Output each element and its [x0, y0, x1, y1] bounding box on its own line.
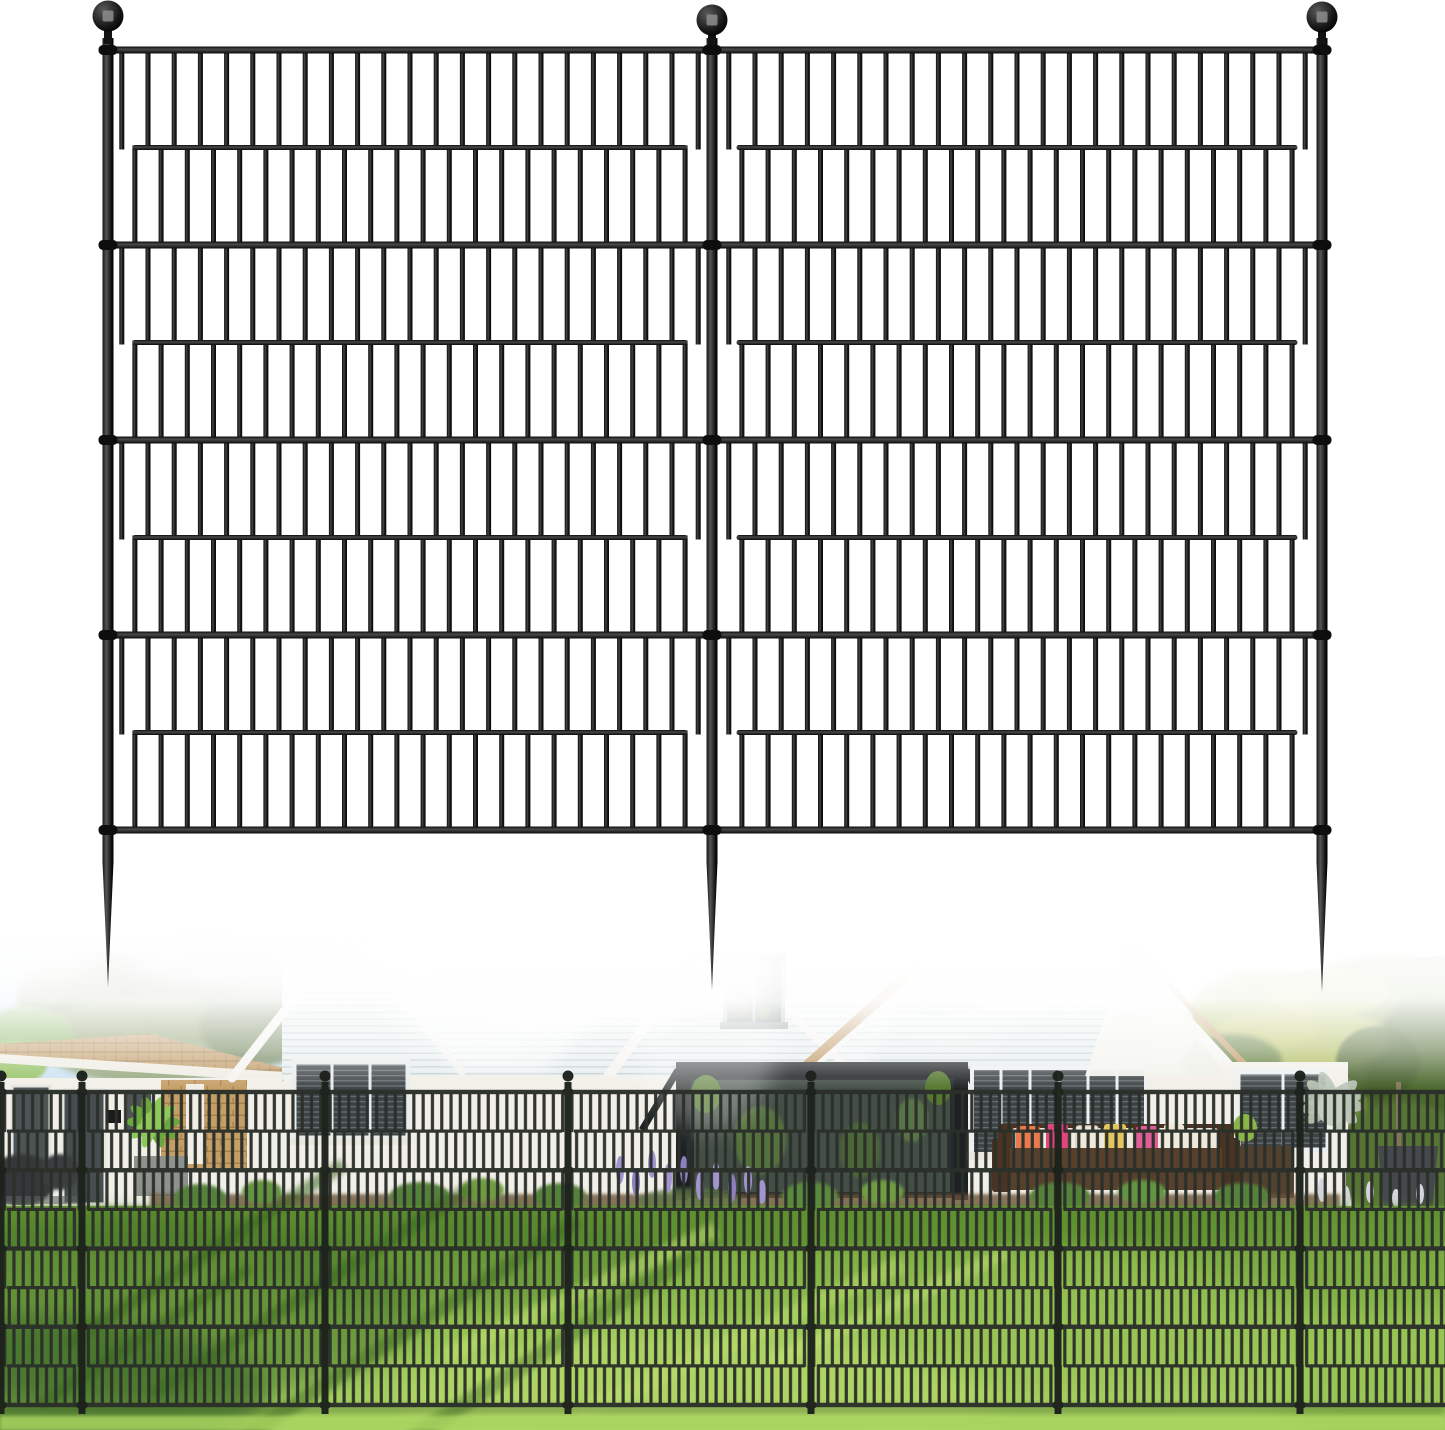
fence-bar — [1132, 146, 1137, 248]
fence-bar — [831, 48, 836, 150]
fence-bar — [1185, 146, 1190, 248]
fence-bar — [1172, 243, 1177, 345]
fence-bar — [1119, 633, 1124, 735]
fence-bar — [394, 146, 399, 248]
fence-bar — [949, 146, 954, 248]
post-shaft — [103, 38, 114, 862]
fence-bar — [1093, 243, 1098, 345]
post-collar — [703, 435, 722, 445]
scene-svg — [0, 0, 1445, 1430]
fence-bar — [355, 48, 360, 150]
post-collar — [0, 1245, 7, 1252]
fence-bar — [539, 243, 544, 345]
post-collar — [77, 1167, 88, 1174]
post-collar — [1295, 1245, 1306, 1252]
post-collar — [77, 1402, 88, 1409]
post-collar — [0, 1323, 7, 1330]
fence-bar — [779, 438, 784, 540]
inset-rail — [331, 1364, 562, 1367]
post-collar — [1295, 1167, 1306, 1174]
fence-bar — [949, 731, 954, 833]
inset-rail — [7, 1364, 76, 1367]
inset-rail — [737, 145, 1298, 150]
fence-bar — [630, 341, 635, 443]
fence-bar — [936, 243, 941, 345]
fence-bar — [303, 48, 308, 150]
post-collar — [0, 1167, 7, 1174]
fence-bar — [1080, 341, 1085, 443]
bar-band — [0, 1365, 1445, 1406]
fence-bar — [368, 341, 373, 443]
fence-bar — [1211, 146, 1216, 248]
fence-bar — [250, 243, 255, 345]
fence-bar — [1001, 146, 1006, 248]
fence-bar — [1224, 48, 1229, 150]
finial-glint — [103, 11, 114, 22]
fence-bar — [766, 146, 771, 248]
fence-bar — [237, 146, 242, 248]
fence-bar — [792, 146, 797, 248]
fence-bar — [224, 48, 229, 150]
fence-bar — [617, 243, 622, 345]
fence-bar — [753, 633, 758, 735]
fence-bar — [936, 438, 941, 540]
fence-bar — [1106, 731, 1111, 833]
fence-bar — [329, 633, 334, 735]
post-collar — [1313, 825, 1332, 835]
post-collar — [320, 1323, 331, 1330]
inset-rail — [817, 1286, 1052, 1289]
fence-bar — [1015, 243, 1020, 345]
fence-bar — [884, 633, 889, 735]
inset-rail — [817, 1130, 1052, 1133]
fence-bar — [1185, 731, 1190, 833]
inset-rail — [1064, 1208, 1294, 1211]
fence-bar — [329, 243, 334, 345]
fence-bar — [525, 536, 530, 638]
fence-bar — [159, 731, 164, 833]
ball-cap — [320, 1071, 331, 1082]
post-collar — [563, 1402, 574, 1409]
inset-rail — [1306, 1364, 1445, 1367]
fence-bar — [844, 146, 849, 248]
fence-bar — [1028, 146, 1033, 248]
fence-bar — [211, 341, 216, 443]
fence-bar — [739, 536, 744, 638]
fence-bar — [1106, 341, 1111, 443]
fence-bar — [1277, 438, 1282, 540]
fence-bar — [923, 536, 928, 638]
fence-bar — [1093, 48, 1098, 150]
fence-bar — [421, 341, 426, 443]
fence-bar — [578, 731, 583, 833]
fence-bar — [779, 243, 784, 345]
fence-bar — [434, 438, 439, 540]
fence-bar — [857, 438, 862, 540]
fence-bar — [696, 48, 701, 150]
fence-bar — [1093, 438, 1098, 540]
fence-bar — [198, 438, 203, 540]
fence-bar — [818, 341, 823, 443]
fence-bar — [988, 438, 993, 540]
bar-band — [0, 1208, 1445, 1249]
fence-bar — [460, 48, 465, 150]
fence-bar — [198, 48, 203, 150]
post-collar — [320, 1089, 331, 1096]
inset-rail — [817, 1208, 1052, 1211]
fence-bar — [1290, 731, 1295, 833]
fence-bar — [1211, 536, 1216, 638]
fence-bar — [1237, 146, 1242, 248]
fence-bar — [525, 146, 530, 248]
fence-bar — [447, 341, 452, 443]
post-collar — [703, 45, 722, 55]
fence-bar — [604, 146, 609, 248]
fence-bar — [486, 438, 491, 540]
inset-rail — [133, 730, 688, 735]
fence-bar — [263, 146, 268, 248]
fence-bar — [591, 48, 596, 150]
fence-bar — [1172, 438, 1177, 540]
post-collar — [806, 1167, 817, 1174]
fence-bar — [237, 731, 242, 833]
full-rail — [0, 1325, 1445, 1329]
fence-bar — [1080, 731, 1085, 833]
fence-bar — [316, 341, 321, 443]
fence-bar — [277, 438, 282, 540]
inset-rail — [574, 1208, 805, 1211]
fence-bar — [381, 438, 386, 540]
fence-bar — [329, 438, 334, 540]
inset-rail — [133, 145, 688, 150]
fence-bar — [726, 633, 731, 735]
fence-bar — [146, 48, 151, 150]
fence-bar — [512, 243, 517, 345]
post-collar — [1313, 45, 1332, 55]
fence-bar — [988, 48, 993, 150]
fence-bar — [1015, 633, 1020, 735]
fence-bar — [683, 536, 688, 638]
fence-bar — [962, 48, 967, 150]
fence-bar — [512, 438, 517, 540]
post-collar — [1295, 1089, 1306, 1096]
fence-bar — [857, 48, 862, 150]
fence-bar — [499, 341, 504, 443]
fade-blob — [850, 955, 1030, 1045]
fence-bar — [792, 731, 797, 833]
fence-bar — [870, 536, 875, 638]
fence-bar — [949, 341, 954, 443]
fence-bar — [290, 341, 295, 443]
fence-bar — [643, 48, 648, 150]
post-collar — [563, 1167, 574, 1174]
fence-bar — [923, 731, 928, 833]
fence-bar — [630, 536, 635, 638]
fence-bar — [1106, 146, 1111, 248]
full-rail — [107, 827, 714, 834]
fence-bar — [1263, 146, 1268, 248]
fence-bar — [1067, 243, 1072, 345]
fence-bar — [617, 48, 622, 150]
fence-bar — [696, 438, 701, 540]
fence-bar — [643, 243, 648, 345]
post-collar — [563, 1323, 574, 1330]
fence-bar — [303, 438, 308, 540]
fence-bar — [1303, 633, 1308, 735]
full-rail — [0, 1246, 1445, 1250]
fence-bar — [277, 48, 282, 150]
post-collar — [99, 435, 118, 445]
fence-bar — [591, 243, 596, 345]
post-collar — [1313, 435, 1332, 445]
full-rail — [711, 632, 1324, 639]
fence-bar — [132, 341, 137, 443]
fence-bar — [316, 536, 321, 638]
fence-bar — [211, 536, 216, 638]
fence-bar — [1198, 243, 1203, 345]
fence-bar — [870, 146, 875, 248]
fence-bar — [119, 48, 124, 150]
fence-bar — [1146, 243, 1151, 345]
fence-bar — [1054, 536, 1059, 638]
fence-bar — [539, 633, 544, 735]
fence-bar — [1224, 438, 1229, 540]
fence-bar — [1159, 146, 1164, 248]
fence-bar — [792, 536, 797, 638]
fence-bar — [1198, 633, 1203, 735]
fence-bar — [884, 48, 889, 150]
fence-bar — [408, 48, 413, 150]
post-collar — [1053, 1167, 1064, 1174]
fence-bar — [962, 633, 967, 735]
ball-cap — [806, 1071, 817, 1082]
fence-bar — [552, 146, 557, 248]
fence-bar — [1224, 243, 1229, 345]
fence-bar — [1237, 731, 1242, 833]
fade-blob — [390, 955, 570, 1055]
fade-blob — [125, 912, 405, 992]
fence-bar — [355, 633, 360, 735]
fence-bar — [211, 731, 216, 833]
fence-bar — [779, 48, 784, 150]
fence-bar — [146, 633, 151, 735]
fence-bar — [975, 341, 980, 443]
fence-bar — [656, 341, 661, 443]
fence-bar — [1290, 536, 1295, 638]
post-collar — [1313, 630, 1332, 640]
inset-rail — [331, 1130, 562, 1133]
fence-bar — [342, 146, 347, 248]
fence-bar — [936, 633, 941, 735]
fence-bar — [460, 633, 465, 735]
fence-bar — [1290, 146, 1295, 248]
fence-bar — [897, 536, 902, 638]
post-collar — [806, 1402, 817, 1409]
fence-bar — [224, 438, 229, 540]
fence-bar — [1237, 536, 1242, 638]
fence-bar — [277, 243, 282, 345]
fence-bar — [394, 731, 399, 833]
fence-bar — [159, 341, 164, 443]
post-collar — [563, 1089, 574, 1096]
fence-bar — [316, 146, 321, 248]
post-collar — [77, 1245, 88, 1252]
fence-bar — [1054, 146, 1059, 248]
fence-bar — [870, 341, 875, 443]
fence-bar — [1106, 536, 1111, 638]
fence-bar — [726, 438, 731, 540]
fence-bar — [1028, 731, 1033, 833]
fence-bar — [936, 48, 941, 150]
fence-bar — [844, 341, 849, 443]
fence-bar — [643, 438, 648, 540]
fence-bar — [421, 146, 426, 248]
fence-bar — [159, 536, 164, 638]
fence-bar — [1263, 731, 1268, 833]
post-collar — [703, 240, 722, 250]
fence-bar — [683, 341, 688, 443]
fence-bar — [988, 243, 993, 345]
fence-bar — [146, 243, 151, 345]
inset-rail — [331, 1208, 562, 1211]
fence-bar — [630, 146, 635, 248]
inset-rail — [1306, 1130, 1445, 1133]
fence-bar — [119, 438, 124, 540]
fence-bar — [1250, 633, 1255, 735]
full-rail — [0, 1168, 1445, 1172]
fence-bar — [1001, 731, 1006, 833]
fence-bar — [1224, 633, 1229, 735]
fence-bar — [831, 438, 836, 540]
post-collar — [806, 1089, 817, 1096]
fence-bar — [355, 438, 360, 540]
fence-bar — [670, 633, 675, 735]
fence-bar — [604, 341, 609, 443]
fence-bar — [1303, 438, 1308, 540]
fence-bar — [1119, 243, 1124, 345]
fence-bar — [394, 341, 399, 443]
fence-bar — [1172, 633, 1177, 735]
inset-rail — [737, 340, 1298, 345]
fence-bar — [617, 633, 622, 735]
post-collar — [1053, 1323, 1064, 1330]
post-collar — [1295, 1323, 1306, 1330]
post-collar — [99, 45, 118, 55]
fence-bar — [355, 243, 360, 345]
post-shaft — [1317, 38, 1328, 862]
fence-bar — [381, 633, 386, 735]
fence-bar — [342, 536, 347, 638]
inset-rail — [737, 730, 1298, 735]
bar-band — [0, 1326, 1445, 1367]
fence-bar — [342, 341, 347, 443]
fence-bar — [525, 731, 530, 833]
fence-bar — [1263, 536, 1268, 638]
fence-bar — [923, 146, 928, 248]
fence-bar — [460, 243, 465, 345]
full-rail — [711, 827, 1324, 834]
fence-bar — [1290, 341, 1295, 443]
fence-bar — [250, 438, 255, 540]
fence-bar — [604, 731, 609, 833]
fence-bar — [1028, 536, 1033, 638]
fence-bar — [132, 731, 137, 833]
post-collar — [563, 1245, 574, 1252]
fence-bar — [473, 341, 478, 443]
fence-bar — [670, 48, 675, 150]
fence-bar — [831, 633, 836, 735]
inset-rail — [1306, 1286, 1445, 1289]
fence-bar — [211, 146, 216, 248]
fence-bar — [1054, 341, 1059, 443]
fence-bar — [1146, 633, 1151, 735]
fence-bar — [857, 633, 862, 735]
fence-bar — [342, 731, 347, 833]
fence-bar — [910, 438, 915, 540]
fence-bar — [1277, 48, 1282, 150]
fence-bar — [910, 243, 915, 345]
fence-bar — [185, 731, 190, 833]
fence-bar — [303, 243, 308, 345]
fence-bar — [1080, 146, 1085, 248]
product-image-stage — [0, 0, 1445, 1430]
fence-bar — [1041, 48, 1046, 150]
fence-bar — [421, 731, 426, 833]
fence-bar — [1001, 536, 1006, 638]
fence-bar — [408, 243, 413, 345]
fence-bar — [831, 243, 836, 345]
fence-bar — [132, 146, 137, 248]
fence-bar — [1080, 536, 1085, 638]
fence-bar — [975, 731, 980, 833]
fence-bar — [962, 243, 967, 345]
fence-bar — [185, 536, 190, 638]
fence-bar — [739, 731, 744, 833]
post-collar — [99, 630, 118, 640]
fence-bar — [224, 243, 229, 345]
post-collar — [806, 1323, 817, 1330]
ball-cap — [1295, 1071, 1306, 1082]
full-rail — [711, 47, 1324, 54]
inset-rail — [1064, 1286, 1294, 1289]
fence-bar — [818, 536, 823, 638]
fence-bar — [766, 536, 771, 638]
fence-bar — [1277, 633, 1282, 735]
fence-bar — [434, 48, 439, 150]
bar-band — [0, 1248, 1445, 1289]
fence-bar — [1172, 48, 1177, 150]
fence-bar — [1054, 731, 1059, 833]
fence-bar — [486, 48, 491, 150]
inset-rail — [88, 1208, 319, 1211]
fence-bar — [1119, 48, 1124, 150]
fence-bar — [460, 438, 465, 540]
fence-bar — [434, 633, 439, 735]
fence-bar — [739, 146, 744, 248]
fence-bar — [1185, 341, 1190, 443]
fence-bar — [670, 243, 675, 345]
fence-bar — [818, 146, 823, 248]
fence-bar — [172, 48, 177, 150]
post-collar — [99, 240, 118, 250]
fence-bar — [552, 731, 557, 833]
inset-rail — [133, 340, 688, 345]
fence-bar — [844, 536, 849, 638]
fence-bar — [884, 243, 889, 345]
fence-bar — [263, 536, 268, 638]
fence-bar — [726, 243, 731, 345]
fence-bar — [250, 633, 255, 735]
